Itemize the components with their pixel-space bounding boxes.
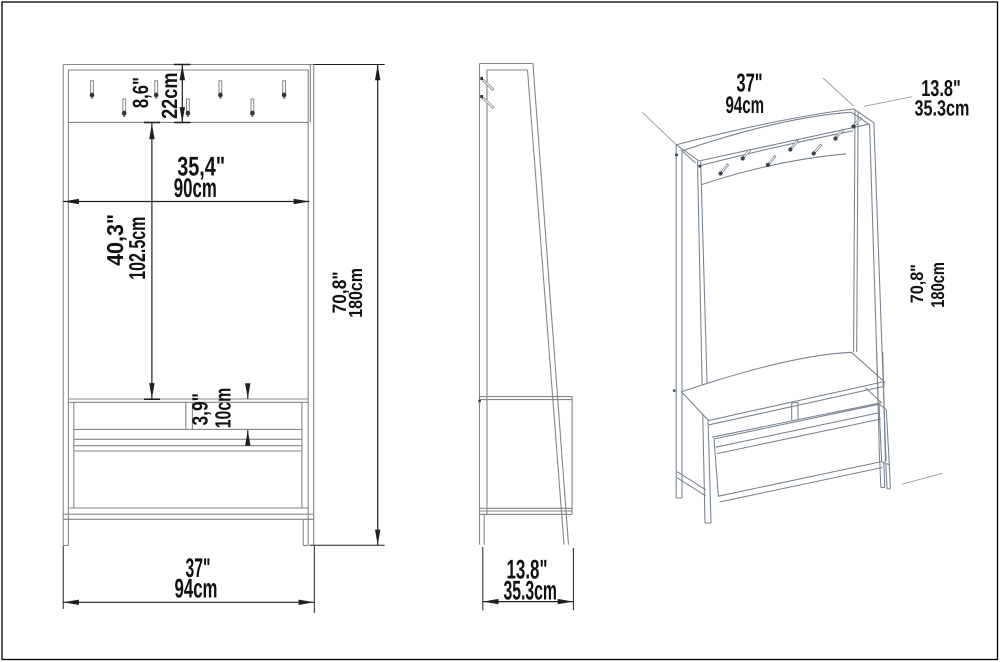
svg-text:35.3cm: 35.3cm bbox=[503, 576, 557, 606]
svg-text:70,8": 70,8" bbox=[907, 264, 927, 303]
svg-text:22cm: 22cm bbox=[157, 72, 182, 118]
svg-text:90cm: 90cm bbox=[174, 173, 217, 203]
svg-text:94cm: 94cm bbox=[175, 574, 218, 604]
svg-text:180cm: 180cm bbox=[927, 262, 948, 308]
svg-text:10cm: 10cm bbox=[211, 388, 236, 429]
svg-text:35.3cm: 35.3cm bbox=[915, 96, 970, 121]
svg-text:8,6": 8,6" bbox=[128, 77, 153, 108]
svg-text:3,9": 3,9" bbox=[187, 393, 212, 425]
svg-text:102.5cm: 102.5cm bbox=[124, 217, 150, 280]
svg-text:180cm: 180cm bbox=[346, 268, 367, 318]
svg-text:94cm: 94cm bbox=[726, 92, 765, 119]
